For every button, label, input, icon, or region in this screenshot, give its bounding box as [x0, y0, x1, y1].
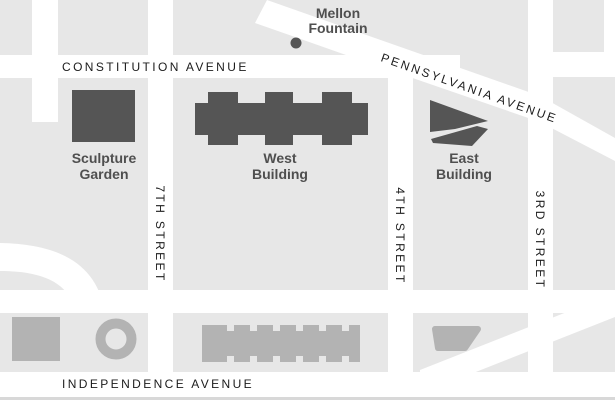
- fourth-street-label: 4TH STREET: [393, 187, 407, 284]
- svg-text:Mellon: Mellon: [316, 5, 360, 21]
- svg-text:Sculpture: Sculpture: [72, 150, 137, 166]
- mellon-fountain-label: Mellon Fountain: [308, 5, 367, 36]
- independence-avenue-label: INDEPENDENCE AVENUE: [62, 377, 254, 391]
- svg-text:Garden: Garden: [79, 166, 128, 182]
- mellon-fountain-dot: [291, 38, 302, 49]
- svg-text:East: East: [449, 150, 479, 166]
- northeast-street-stub-road: [604, 0, 615, 54]
- constitution-avenue-label: CONSTITUTION AVENUE: [62, 60, 249, 74]
- sculpture-garden-label: Sculpture Garden: [72, 150, 137, 182]
- svg-text:West: West: [263, 150, 297, 166]
- svg-text:Building: Building: [436, 166, 492, 182]
- third-street-label: 3RD STREET: [533, 191, 547, 290]
- svg-text:Fountain: Fountain: [308, 20, 367, 36]
- west-building-footprint: [195, 92, 368, 145]
- sculpture-garden-building: [72, 90, 135, 142]
- long-notched-building: [202, 325, 360, 362]
- northwest-street-stub-road: [32, 0, 58, 122]
- seventh-street-label: 7TH STREET: [153, 185, 167, 282]
- square-building: [12, 317, 60, 361]
- nga-area-map: CONSTITUTION AVENUE INDEPENDENCE AVENUE …: [0, 0, 615, 400]
- svg-text:Building: Building: [252, 166, 308, 182]
- map-canvas: CONSTITUTION AVENUE INDEPENDENCE AVENUE …: [0, 0, 615, 400]
- east-cross-street-road: [553, 52, 615, 77]
